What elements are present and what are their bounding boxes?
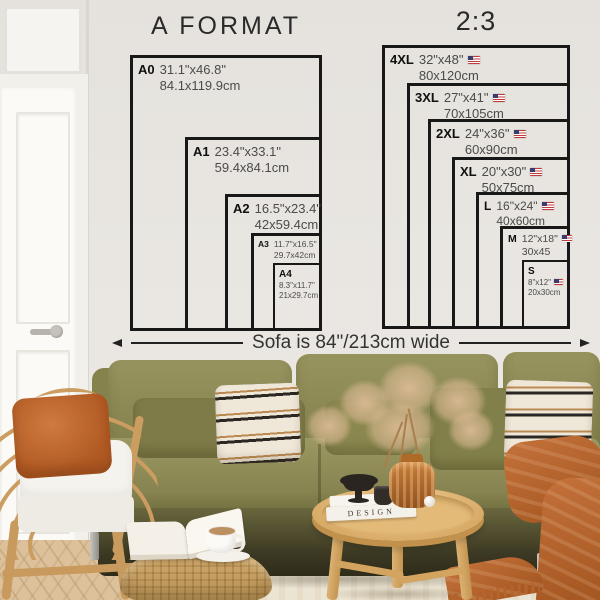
size-code: 4XL <box>390 52 414 68</box>
door-panel <box>16 112 70 324</box>
black-pedestal-bowl <box>348 498 369 503</box>
ratio-2-3-title: 2:3 <box>382 6 570 37</box>
size-label-s: S 8"x12" 20x30cm <box>524 262 568 302</box>
door-handle-rose <box>50 325 63 338</box>
dried-flowers <box>440 402 502 458</box>
size-inches: 32"x48" <box>419 52 480 68</box>
us-flag-icon <box>468 56 480 64</box>
size-label-a4: A4 8.3"x11.7" 21x29.7cm <box>275 265 320 305</box>
size-inches: 16"x24" <box>496 199 553 214</box>
size-label-a2: A2 16.5"x23.4" 42x59.4cm <box>228 197 319 238</box>
size-inches: 12"x18" <box>522 233 572 246</box>
size-cm: 29.7x42cm <box>274 250 317 261</box>
door-transom-panel <box>4 6 82 74</box>
size-label-a1: A1 23.4"x33.1" 59.4x84.1cm <box>188 140 319 181</box>
us-flag-icon <box>554 279 563 285</box>
us-flag-icon <box>542 202 554 210</box>
size-cm: 30x45 <box>522 246 572 259</box>
rust-throw-blanket <box>536 476 600 600</box>
seat-seam <box>318 444 321 510</box>
size-inches: 8"x12" <box>528 278 564 288</box>
size-code: S <box>528 265 564 278</box>
striped-pillow <box>215 383 302 465</box>
size-inches: 31.1"x46.8" <box>160 62 241 78</box>
size-inches: 11.7"x16.5" <box>274 239 317 250</box>
size-cm: 42x59.4cm <box>255 217 321 233</box>
size-cm: 59.4x84.1cm <box>215 160 289 176</box>
size-box-s: S 8"x12" 20x30cm <box>522 260 570 329</box>
size-cm: 20x30cm <box>528 288 564 298</box>
size-code: L <box>484 199 491 214</box>
sofa-width-annotation: Sofa is 84"/213cm wide <box>112 333 590 353</box>
us-flag-icon <box>514 130 526 138</box>
size-inches: 27"x41" <box>444 90 505 106</box>
size-code: A1 <box>193 144 210 160</box>
size-code: A0 <box>138 62 155 78</box>
book-page <box>126 521 189 560</box>
size-inches: 8.3"x11.7" <box>279 281 316 291</box>
size-label-m: M 12"x18" 30x45 <box>503 229 567 263</box>
white-sphere-decor <box>424 496 435 507</box>
us-flag-icon <box>530 168 542 176</box>
arrow-line <box>131 342 243 344</box>
size-inches: 20"x30" <box>482 164 543 180</box>
size-label-a3: A3 11.7"x16.5" 29.7x42cm <box>254 236 319 263</box>
right-arrowhead-icon <box>580 339 590 347</box>
size-code: A3 <box>258 239 269 250</box>
size-code: A2 <box>233 201 250 217</box>
size-code: A4 <box>279 268 316 281</box>
us-flag-icon <box>562 235 572 242</box>
size-code: 3XL <box>415 90 439 106</box>
size-code: XL <box>460 164 477 180</box>
size-inches: 23.4"x33.1" <box>215 144 289 160</box>
size-cm: 84.1x119.9cm <box>160 78 241 94</box>
size-inches: 24"x36" <box>465 126 526 142</box>
arrow-line <box>459 342 571 344</box>
poster-size-guide-image: A FORMAT 2:3 A0 31.1"x46.8" 84.1x119.9cm… <box>0 0 600 600</box>
size-code: M <box>508 233 517 246</box>
size-code: 2XL <box>436 126 460 142</box>
size-label-a0: A0 31.1"x46.8" 84.1x119.9cm <box>133 58 319 99</box>
a-format-title: A FORMAT <box>130 12 322 41</box>
size-cm: 21x29.7cm <box>279 291 316 301</box>
size-inches: 16.5"x23.4" <box>255 201 321 217</box>
sofa-width-text: Sofa is 84"/213cm wide <box>252 332 450 354</box>
left-arrowhead-icon <box>112 339 122 347</box>
chair-cushion-front <box>18 494 134 532</box>
us-flag-icon <box>493 94 505 102</box>
rust-pillow <box>11 393 112 480</box>
dried-flowers <box>298 398 360 454</box>
size-box-a4: A4 8.3"x11.7" 21x29.7cm <box>273 263 322 331</box>
